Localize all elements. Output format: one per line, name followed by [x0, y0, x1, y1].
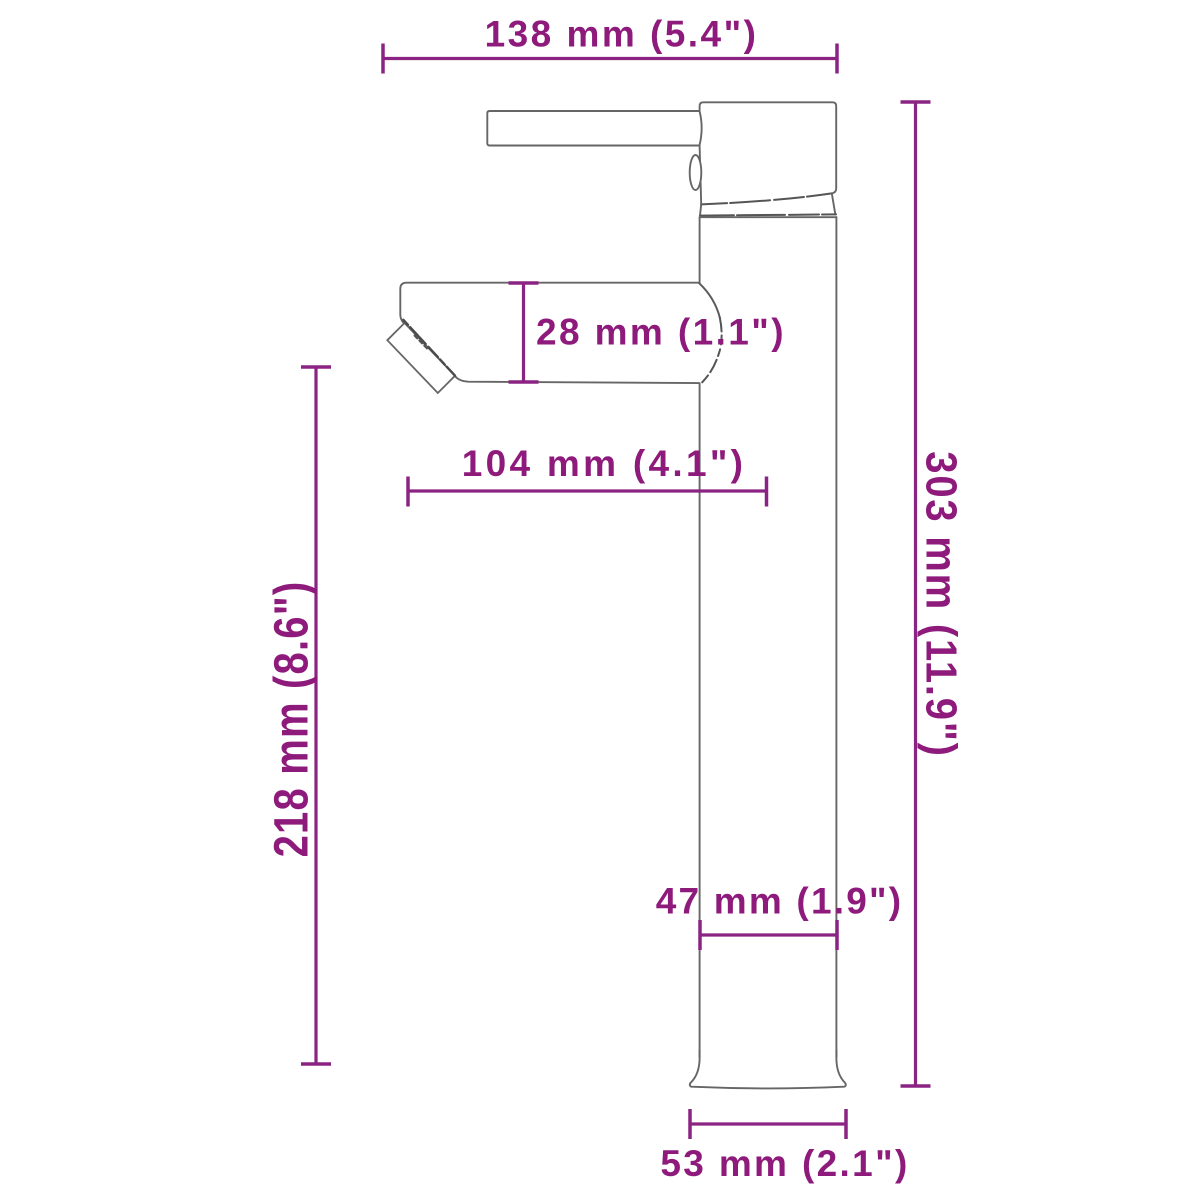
svg-text:138 mm (5.4"): 138 mm (5.4") [485, 14, 759, 55]
svg-text:218 mm (8.6"): 218 mm (8.6") [265, 581, 318, 858]
svg-text:47 mm (1.9"): 47 mm (1.9") [656, 881, 904, 922]
svg-text:303 mm (11.9"): 303 mm (11.9") [917, 451, 966, 757]
svg-text:104 mm (4.1"): 104 mm (4.1") [462, 443, 747, 484]
svg-text:53 mm (2.1"): 53 mm (2.1") [660, 1143, 909, 1184]
svg-text:28 mm (1.1"): 28 mm (1.1") [536, 312, 786, 353]
